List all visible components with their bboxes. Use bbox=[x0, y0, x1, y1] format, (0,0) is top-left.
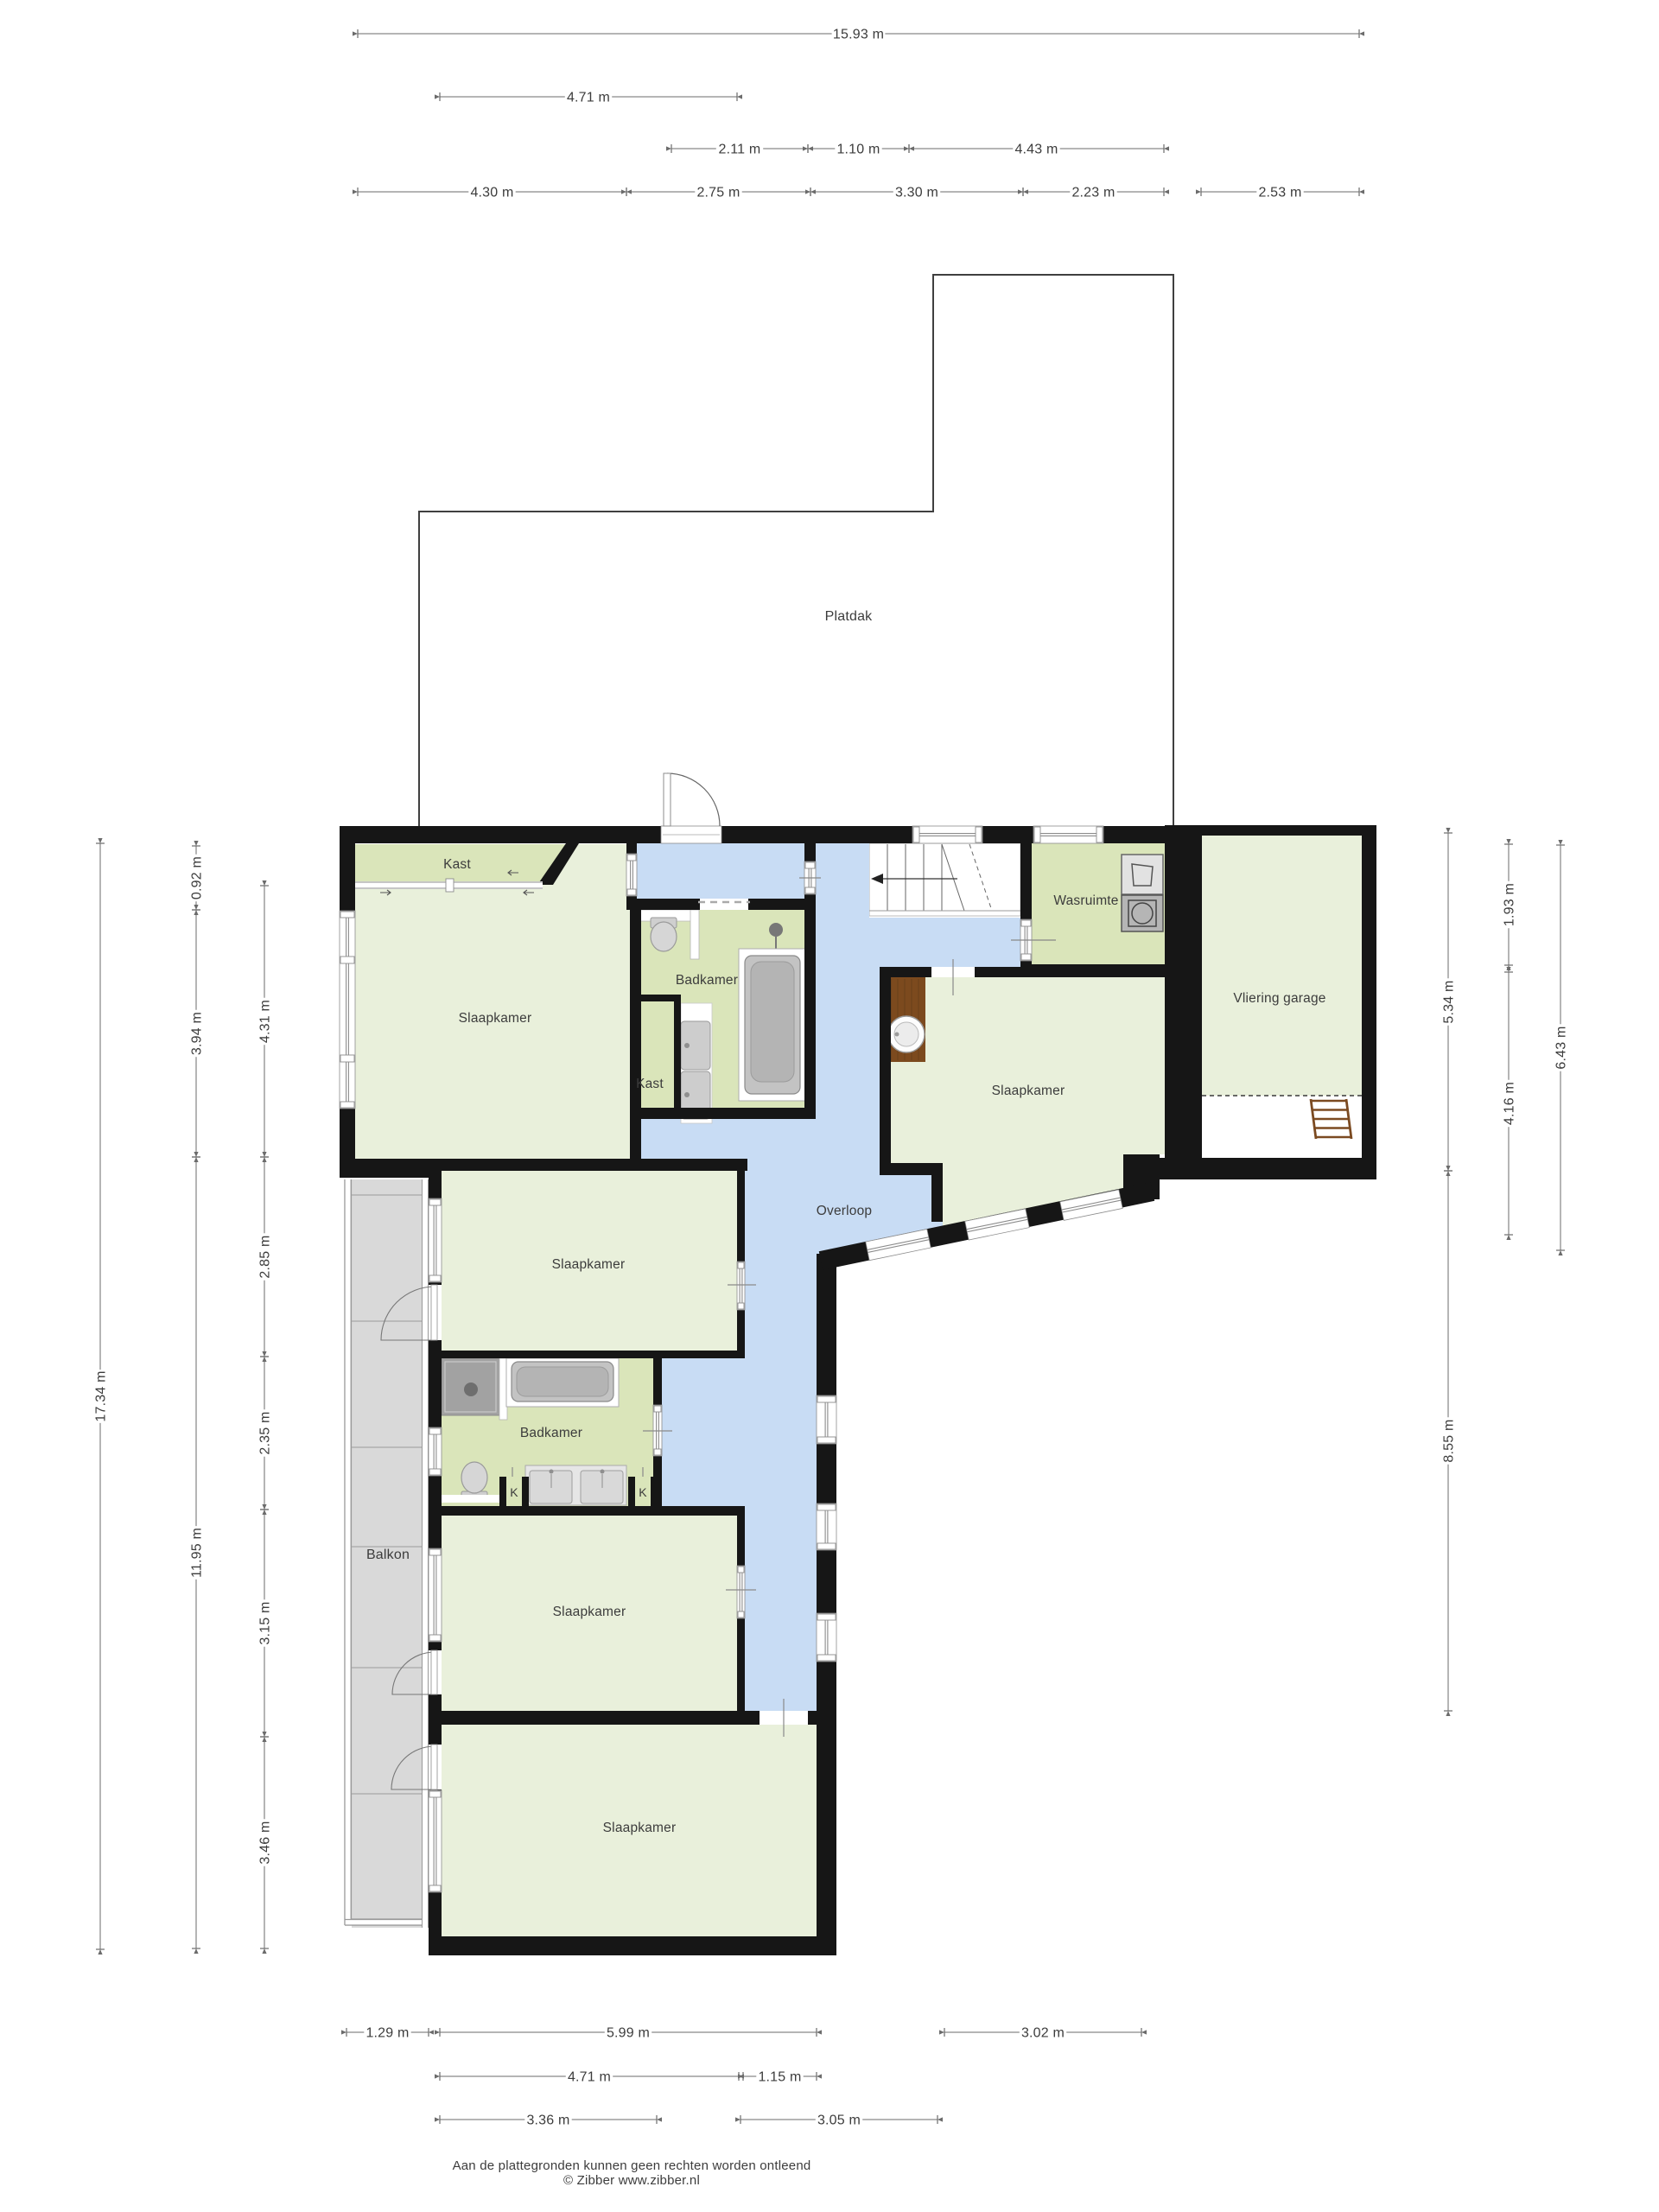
svg-text:15.93 m: 15.93 m bbox=[833, 28, 884, 42]
svg-text:3.46 m: 3.46 m bbox=[258, 1821, 273, 1864]
svg-text:3.36 m: 3.36 m bbox=[526, 2113, 569, 2128]
svg-text:Wasruimte: Wasruimte bbox=[1053, 893, 1118, 908]
svg-text:3.94 m: 3.94 m bbox=[190, 1012, 205, 1055]
svg-text:5.99 m: 5.99 m bbox=[607, 2026, 650, 2041]
svg-text:Slaapkamer: Slaapkamer bbox=[552, 1257, 626, 1272]
svg-text:17.34 m: 17.34 m bbox=[94, 1370, 109, 1421]
svg-text:4.71 m: 4.71 m bbox=[568, 2070, 611, 2085]
svg-text:1.29 m: 1.29 m bbox=[365, 2026, 409, 2041]
svg-text:8.55 m: 8.55 m bbox=[1442, 1419, 1457, 1462]
svg-text:Balkon: Balkon bbox=[366, 1548, 410, 1562]
svg-text:Overloop: Overloop bbox=[817, 1204, 873, 1218]
svg-text:3.05 m: 3.05 m bbox=[817, 2113, 861, 2128]
svg-text:Slaapkamer: Slaapkamer bbox=[459, 1011, 532, 1026]
svg-text:2.53 m: 2.53 m bbox=[1258, 186, 1301, 200]
svg-text:3.30 m: 3.30 m bbox=[895, 186, 938, 200]
svg-text:K: K bbox=[510, 1485, 518, 1499]
svg-text:1.93 m: 1.93 m bbox=[1503, 883, 1517, 926]
svg-text:Aan de plattegronden kunnen ge: Aan de plattegronden kunnen geen rechten… bbox=[453, 2158, 811, 2173]
svg-text:2.23 m: 2.23 m bbox=[1071, 186, 1115, 200]
svg-text:4.43 m: 4.43 m bbox=[1014, 143, 1058, 157]
svg-text:2.35 m: 2.35 m bbox=[258, 1411, 273, 1454]
svg-text:4.71 m: 4.71 m bbox=[567, 91, 610, 105]
svg-text:4.31 m: 4.31 m bbox=[258, 1000, 273, 1043]
svg-text:2.75 m: 2.75 m bbox=[696, 186, 740, 200]
svg-text:4.16 m: 4.16 m bbox=[1503, 1082, 1517, 1125]
svg-text:6.43 m: 6.43 m bbox=[1554, 1026, 1569, 1069]
svg-text:0.92 m: 0.92 m bbox=[190, 856, 205, 899]
svg-text:Slaapkamer: Slaapkamer bbox=[603, 1821, 677, 1835]
svg-text:11.95 m: 11.95 m bbox=[190, 1528, 205, 1578]
svg-text:Badkamer: Badkamer bbox=[676, 973, 738, 988]
svg-text:Slaapkamer: Slaapkamer bbox=[992, 1084, 1065, 1098]
svg-text:2.85 m: 2.85 m bbox=[258, 1235, 273, 1278]
svg-text:5.34 m: 5.34 m bbox=[1442, 980, 1457, 1023]
svg-text:Platdak: Platdak bbox=[825, 609, 874, 624]
svg-text:3.02 m: 3.02 m bbox=[1021, 2026, 1065, 2041]
svg-text:© Zibber www.zibber.nl: © Zibber www.zibber.nl bbox=[563, 2173, 700, 2188]
svg-text:1.10 m: 1.10 m bbox=[836, 143, 880, 157]
svg-text:K: K bbox=[639, 1485, 647, 1499]
svg-text:Kast: Kast bbox=[636, 1077, 664, 1091]
svg-text:Slaapkamer: Slaapkamer bbox=[553, 1605, 626, 1619]
svg-text:3.15 m: 3.15 m bbox=[258, 1601, 273, 1644]
svg-text:Vliering garage: Vliering garage bbox=[1233, 991, 1325, 1006]
svg-text:2.11 m: 2.11 m bbox=[719, 143, 761, 157]
svg-text:Badkamer: Badkamer bbox=[520, 1426, 582, 1440]
svg-text:4.30 m: 4.30 m bbox=[470, 186, 513, 200]
svg-text:1.15 m: 1.15 m bbox=[758, 2070, 801, 2085]
svg-text:Kast: Kast bbox=[443, 857, 471, 872]
